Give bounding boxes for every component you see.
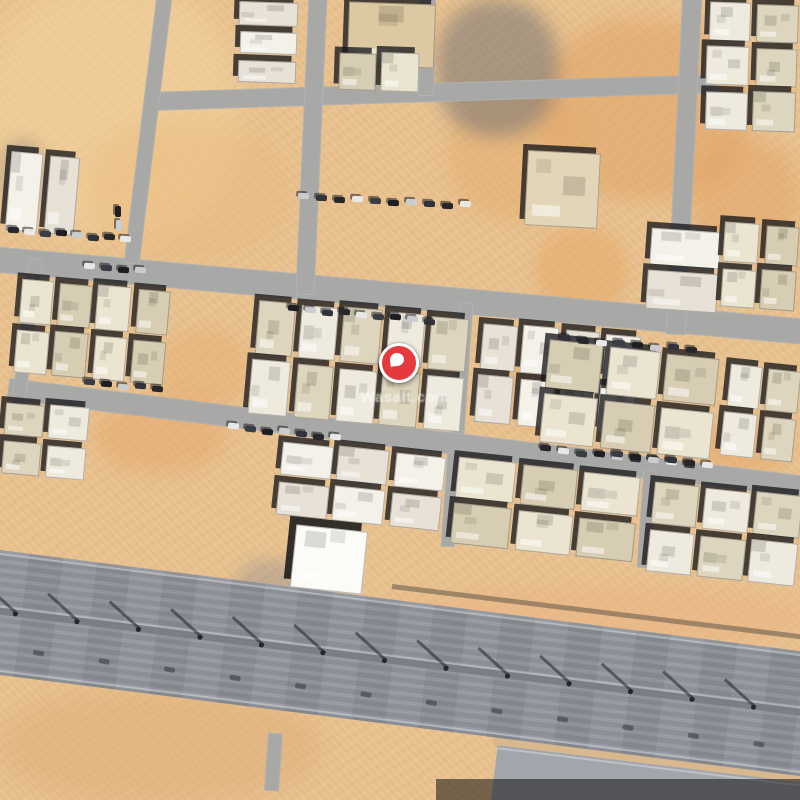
rooftop-detail	[762, 288, 770, 296]
building	[5, 151, 44, 232]
rooftop-detail	[710, 106, 722, 116]
building	[240, 31, 298, 56]
rooftop-detail	[314, 328, 323, 339]
rooftop-detail	[149, 298, 156, 307]
parked-car	[279, 428, 291, 435]
building	[51, 331, 89, 379]
rooftop-detail	[378, 13, 397, 26]
parked-car	[424, 200, 435, 207]
rooftop-detail	[616, 364, 628, 374]
parked-car	[322, 310, 333, 317]
rooftop-detail	[768, 253, 781, 260]
rooftop-detail	[679, 429, 691, 439]
parked-car	[686, 347, 697, 354]
rooftop-detail	[685, 232, 700, 240]
traffic-smudge	[164, 666, 176, 673]
rooftop-detail	[702, 565, 720, 573]
rooftop-detail	[60, 314, 73, 322]
parked-car	[115, 206, 121, 217]
rooftop-detail	[329, 530, 346, 544]
rooftop-detail	[304, 530, 327, 548]
rooftop-detail	[484, 389, 492, 399]
rooftop-detail	[716, 554, 726, 563]
rooftop-detail	[484, 356, 498, 364]
rooftop-detail	[536, 519, 549, 528]
rooftop-detail	[778, 508, 793, 520]
building	[720, 268, 757, 308]
building	[722, 221, 760, 263]
rooftop-detail	[357, 492, 373, 502]
rooftop-detail	[342, 79, 356, 85]
building	[13, 329, 50, 375]
rooftop-detail	[428, 414, 443, 423]
building-cluster	[717, 360, 800, 466]
rooftop-detail	[281, 505, 301, 512]
rooftop-detail	[285, 485, 300, 495]
rooftop-detail	[531, 204, 560, 217]
rooftop-detail	[502, 336, 510, 345]
building	[130, 340, 167, 386]
building	[719, 411, 757, 458]
building	[92, 335, 128, 382]
rooftop-detail	[777, 233, 784, 241]
rooftop-detail	[738, 418, 749, 430]
parked-car	[460, 201, 471, 208]
rooftop-detail	[395, 517, 414, 524]
parked-car	[118, 267, 129, 274]
building	[335, 445, 390, 485]
rooftop-detail	[54, 409, 63, 416]
building	[389, 492, 442, 531]
parked-car	[104, 233, 115, 240]
rooftop-detail	[752, 570, 771, 578]
rooftop-detail	[588, 487, 605, 498]
rooftop-detail	[663, 441, 684, 450]
building-cluster	[0, 398, 93, 484]
building-cluster	[2, 149, 83, 239]
rooftop-detail	[259, 339, 274, 348]
rooftop-detail	[389, 64, 397, 72]
parked-car	[390, 313, 401, 320]
building	[696, 536, 746, 582]
rooftop-detail	[456, 532, 479, 541]
rooftop-detail	[286, 455, 301, 465]
building	[599, 400, 655, 453]
building	[44, 155, 81, 235]
rooftop-detail	[27, 412, 36, 419]
rooftop-detail	[764, 447, 777, 455]
rooftop-detail	[488, 338, 499, 350]
rooftop-detail	[138, 353, 148, 364]
rooftop-detail	[768, 432, 775, 441]
rooftop-detail	[49, 468, 64, 474]
building	[576, 518, 636, 563]
building	[3, 402, 45, 437]
building	[764, 225, 800, 266]
rooftop-detail	[763, 298, 777, 305]
building	[293, 364, 334, 421]
rooftop-detail	[606, 522, 619, 531]
building-cluster	[643, 223, 725, 316]
parked-car	[334, 197, 345, 204]
rooftop-detail	[586, 522, 603, 533]
building-cluster	[537, 337, 723, 463]
rooftop-detail	[549, 399, 561, 410]
rooftop-detail	[71, 302, 79, 311]
rooftop-detail	[55, 363, 68, 371]
rooftop-detail	[464, 516, 477, 525]
rooftop-detail	[58, 170, 65, 186]
rooftop-detail	[401, 322, 409, 333]
rooftop-detail	[343, 67, 354, 76]
building	[455, 457, 517, 504]
rooftop-detail	[150, 352, 158, 361]
rooftop-detail	[525, 493, 547, 501]
rooftop-detail	[764, 16, 776, 26]
parked-car	[101, 381, 112, 388]
building	[276, 481, 330, 519]
rooftop-detail	[521, 412, 534, 420]
building-cluster	[717, 219, 800, 314]
rooftop-detail	[52, 429, 68, 435]
parked-car	[120, 235, 131, 242]
parked-car	[442, 202, 453, 209]
parked-car	[388, 199, 399, 206]
rooftop-detail	[48, 211, 60, 224]
building-cluster	[287, 520, 372, 598]
traffic-smudge	[98, 658, 110, 665]
rooftop-detail	[461, 486, 484, 495]
rooftop-detail	[527, 330, 535, 340]
rooftop-detail	[449, 320, 458, 331]
rooftop-detail	[754, 92, 767, 102]
rooftop-detail	[563, 176, 585, 196]
rooftop-detail	[334, 502, 346, 510]
street-road	[295, 0, 327, 295]
traffic-smudge	[33, 650, 45, 657]
rooftop-detail	[551, 374, 572, 384]
rooftop-detail	[98, 285, 109, 297]
building	[290, 524, 368, 594]
rooftop-detail	[717, 15, 726, 23]
rooftop-detail	[651, 559, 669, 567]
building	[1, 440, 42, 476]
parked-car	[650, 344, 661, 351]
rooftop-detail	[710, 73, 727, 80]
rooftop-detail	[61, 460, 70, 467]
rooftop-detail	[762, 104, 771, 112]
rooftop-detail	[709, 119, 725, 125]
parked-car	[666, 456, 678, 463]
building	[727, 364, 763, 410]
rooftop-detail	[730, 394, 743, 402]
parked-car	[560, 335, 571, 342]
rooftop-detail	[759, 553, 770, 562]
rooftop-detail	[244, 18, 267, 22]
rooftop-detail	[98, 316, 111, 324]
parked-car	[101, 265, 112, 272]
rooftop-detail	[302, 486, 313, 493]
rooftop-detail	[545, 428, 566, 438]
rooftop-detail	[783, 372, 791, 381]
rooftop-detail	[478, 375, 489, 388]
rooftop-detail	[32, 333, 40, 342]
rooftop-detail	[780, 14, 789, 21]
building	[480, 323, 519, 372]
sand-patch	[436, 0, 558, 136]
parked-car	[630, 453, 642, 460]
parked-car	[316, 195, 327, 202]
building	[338, 53, 376, 91]
building-cluster	[641, 478, 800, 590]
rooftop-detail	[70, 337, 81, 349]
rooftop-detail	[756, 120, 773, 127]
rooftop-detail	[739, 271, 747, 279]
rooftop-detail	[350, 324, 359, 335]
traffic-smudge	[753, 741, 765, 748]
traffic-smudge	[557, 716, 569, 723]
building	[759, 269, 797, 311]
rooftop-detail	[267, 5, 284, 11]
parked-car	[84, 379, 95, 386]
parked-car	[578, 337, 589, 344]
rooftop-detail	[344, 346, 359, 356]
map-marker[interactable]	[379, 343, 419, 383]
rooftop-detail	[569, 412, 586, 426]
building	[662, 354, 719, 406]
building	[645, 269, 719, 313]
rooftop-detail	[777, 275, 788, 286]
rooftop-detail	[757, 522, 776, 530]
rooftop-detail	[768, 399, 781, 407]
building	[764, 369, 800, 414]
rooftop-detail	[285, 465, 305, 472]
building-cluster	[702, 0, 800, 136]
rooftop-detail	[605, 435, 626, 444]
rooftop-detail	[661, 231, 682, 241]
parked-car	[356, 311, 367, 318]
rooftop-detail	[695, 368, 707, 378]
parked-car	[245, 425, 257, 432]
traffic-smudge	[295, 683, 307, 690]
rooftop-detail	[339, 447, 355, 457]
building	[239, 1, 299, 27]
rooftop-detail	[703, 552, 717, 563]
rooftop-detail	[740, 372, 747, 381]
rooftop-detail	[302, 343, 317, 352]
rooftop-detail	[251, 385, 260, 396]
building	[539, 393, 597, 447]
building	[45, 445, 87, 480]
rooftop-detail	[713, 29, 729, 35]
rooftop-detail	[400, 505, 411, 512]
traffic-smudge	[229, 675, 241, 682]
rooftop-detail	[248, 67, 265, 73]
satellite-map[interactable]: Wasalt.com	[0, 0, 800, 800]
rooftop-detail	[271, 67, 283, 71]
building	[474, 374, 514, 425]
parked-car	[296, 431, 308, 438]
rooftop-detail	[707, 517, 725, 525]
rooftop-detail	[348, 457, 360, 465]
rooftop-detail	[674, 369, 690, 382]
rooftop-detail	[301, 457, 312, 464]
traffic-smudge	[491, 708, 503, 715]
parked-car	[424, 318, 435, 325]
building-cluster	[335, 49, 422, 96]
building	[646, 529, 695, 575]
building	[709, 2, 751, 42]
building-cluster	[235, 0, 302, 87]
rooftop-detail	[413, 460, 424, 467]
building	[247, 359, 290, 417]
rooftop-detail	[50, 458, 62, 467]
rooftop-detail	[548, 363, 560, 374]
building	[380, 52, 419, 92]
rooftop-detail	[727, 272, 737, 282]
rooftop-detail	[99, 351, 106, 360]
rooftop-detail	[531, 388, 539, 398]
rooftop-detail	[731, 234, 739, 242]
rooftop-detail	[726, 250, 740, 257]
rooftop-detail	[648, 288, 664, 296]
building	[56, 283, 93, 329]
rooftop-detail	[668, 387, 689, 396]
rooftop-detail	[772, 372, 782, 383]
rooftop-detail	[252, 398, 267, 408]
traffic-smudge	[622, 724, 634, 731]
rooftop-detail	[12, 413, 24, 422]
building	[701, 488, 751, 534]
rooftop-detail	[520, 539, 542, 547]
parked-car	[576, 450, 588, 457]
rooftop-detail	[15, 176, 23, 192]
rooftop-detail	[54, 352, 62, 361]
rooftop-detail	[760, 31, 776, 37]
rooftop-detail	[664, 426, 680, 439]
parked-car	[88, 234, 99, 241]
rooftop-detail	[96, 367, 109, 375]
rooftop-detail	[582, 546, 604, 554]
rooftop-detail	[382, 409, 397, 419]
rooftop-detail	[760, 75, 776, 81]
rooftop-detail	[21, 333, 31, 344]
rooftop-detail	[399, 477, 418, 484]
rooftop-detail	[17, 360, 30, 368]
parked-car	[330, 433, 342, 440]
parked-car	[594, 450, 606, 457]
building	[514, 510, 574, 556]
rooftop-detail	[723, 432, 731, 441]
rooftop-detail	[524, 359, 538, 368]
rooftop-detail	[724, 295, 737, 302]
building	[756, 4, 799, 43]
building	[519, 464, 579, 510]
rooftop-detail	[8, 425, 23, 431]
parked-car	[313, 433, 325, 440]
rooftop-detail	[436, 321, 448, 335]
building	[280, 442, 334, 480]
parked-car	[648, 456, 660, 463]
parked-car	[684, 459, 696, 466]
rooftop-detail	[478, 408, 492, 417]
parked-car	[596, 340, 607, 347]
rooftop-detail	[5, 464, 20, 470]
parked-car	[56, 230, 67, 237]
parked-car	[288, 305, 299, 312]
rooftop-detail	[573, 347, 590, 361]
rooftop-detail	[652, 297, 680, 305]
rooftop-detail	[341, 471, 361, 478]
building	[747, 539, 798, 587]
building	[135, 289, 171, 336]
building	[450, 502, 512, 549]
parked-car	[352, 196, 363, 203]
building	[545, 339, 603, 393]
rooftop-detail	[722, 108, 731, 115]
rooftop-detail	[728, 59, 741, 69]
parked-car	[24, 229, 35, 236]
rooftop-detail	[104, 299, 112, 308]
building	[651, 482, 700, 528]
rooftop-detail	[656, 254, 684, 261]
rooftop-detail	[432, 354, 447, 363]
rooftop-detail	[586, 500, 608, 508]
building	[657, 407, 714, 459]
rooftop-detail	[241, 12, 254, 17]
rooftop-detail	[486, 473, 504, 485]
rooftop-detail	[269, 366, 281, 381]
building	[649, 228, 721, 270]
parked-car	[135, 266, 146, 273]
rooftop-detail	[712, 501, 726, 512]
parked-car	[298, 193, 309, 200]
parked-car	[84, 263, 95, 270]
building	[238, 60, 297, 84]
map-watermark: Wasalt.com	[335, 389, 475, 406]
building-cluster	[448, 454, 645, 565]
rooftop-detail	[680, 276, 701, 287]
rooftop-detail	[730, 500, 740, 509]
rooftop-detail	[9, 208, 22, 221]
rooftop-detail	[604, 490, 617, 499]
rooftop-detail	[22, 310, 35, 318]
rooftop-detail	[243, 76, 265, 80]
building	[760, 416, 796, 462]
parked-car	[632, 342, 643, 349]
rooftop-detail	[712, 50, 721, 58]
parked-car	[540, 444, 552, 451]
rooftop-detail	[761, 496, 772, 505]
building	[524, 150, 601, 229]
building-cluster	[522, 148, 604, 232]
rooftop-detail	[354, 68, 362, 75]
traffic-smudge	[426, 699, 438, 706]
building	[605, 347, 661, 400]
parked-car	[558, 447, 570, 454]
parked-car	[262, 428, 274, 435]
rooftop-detail	[302, 383, 310, 394]
building	[755, 48, 797, 88]
rooftop-detail	[297, 570, 326, 583]
bottom-overlay	[436, 779, 800, 800]
rooftop-detail	[297, 402, 312, 411]
parked-car	[8, 227, 19, 234]
rooftop-detail	[751, 540, 766, 552]
rooftop-detail	[384, 80, 399, 86]
rooftop-detail	[134, 370, 147, 378]
building	[331, 485, 386, 525]
